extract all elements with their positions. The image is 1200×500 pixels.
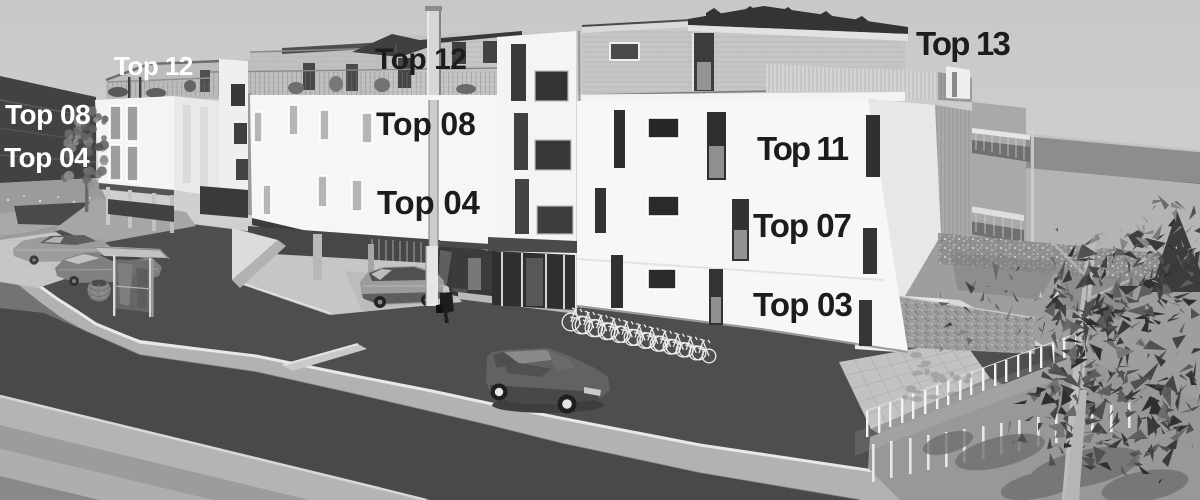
svg-text:Top 12: Top 12 (114, 51, 193, 81)
svg-text:Top 12: Top 12 (375, 43, 466, 76)
svg-text:Top 13: Top 13 (916, 25, 1011, 62)
svg-text:Top 08: Top 08 (376, 106, 476, 142)
svg-text:Top 04: Top 04 (377, 184, 481, 221)
svg-text:Top 07: Top 07 (753, 207, 851, 244)
svg-text:Top 08: Top 08 (5, 99, 90, 130)
svg-text:Top 04: Top 04 (4, 142, 90, 173)
svg-text:Top 03: Top 03 (753, 286, 853, 323)
svg-text:Top 11: Top 11 (757, 130, 849, 167)
